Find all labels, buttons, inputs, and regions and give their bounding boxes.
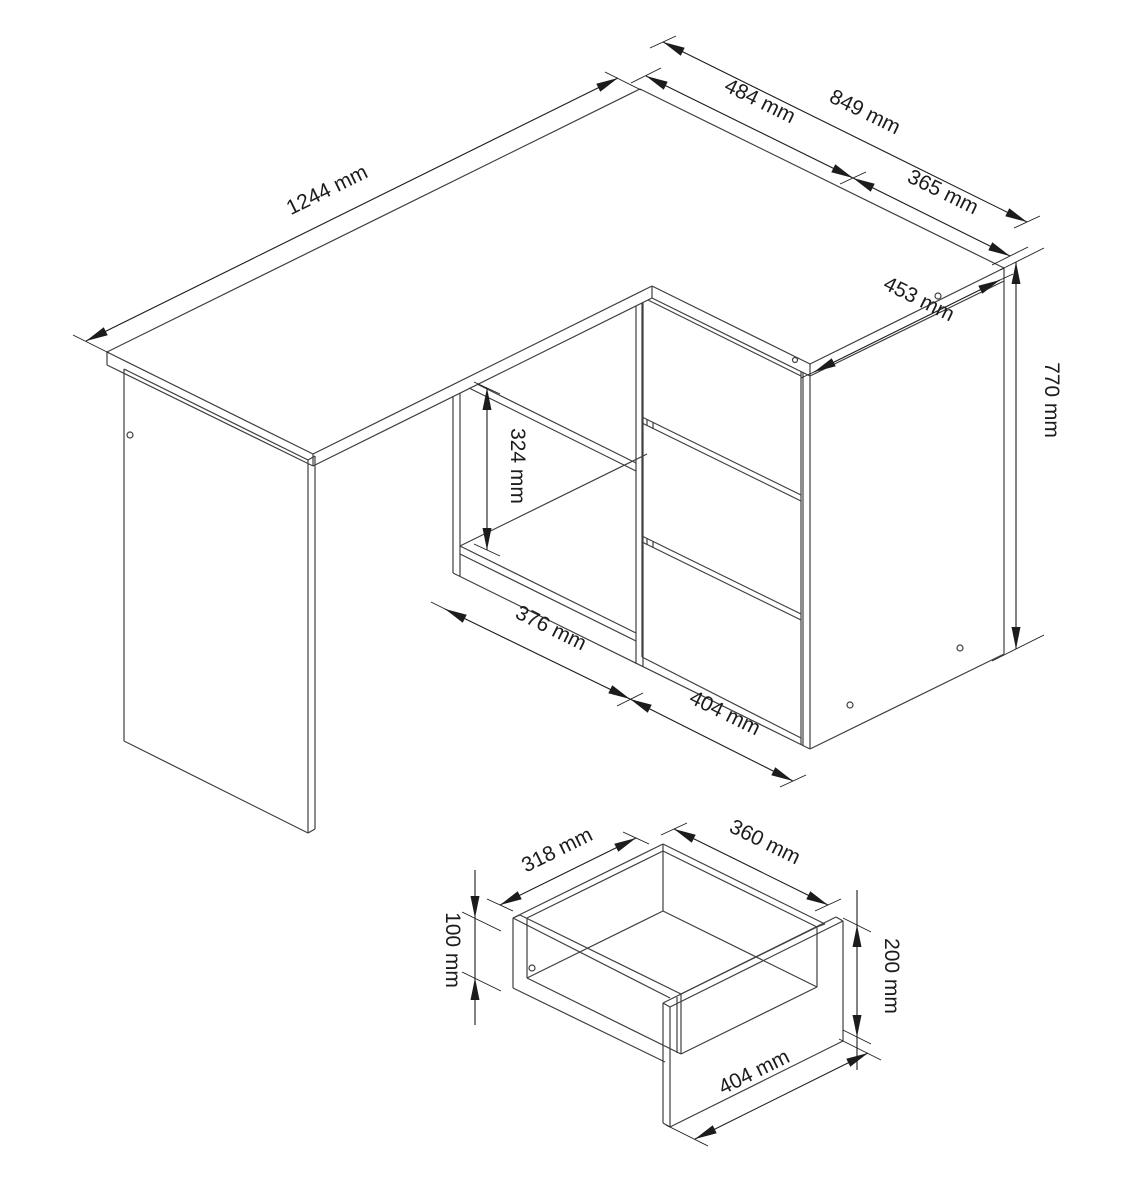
drawing-line — [642, 542, 801, 620]
dimension-arrowhead — [1012, 627, 1021, 649]
drawing-line — [527, 911, 663, 978]
dimension-arrowhead — [471, 896, 480, 918]
screw-hole-mark — [793, 358, 798, 363]
dimension-arrowhead — [674, 829, 696, 843]
dimension-arrowhead — [630, 699, 652, 713]
dim-label-top-right: 365 mm — [904, 165, 982, 219]
dimension-arrowhead — [853, 178, 875, 192]
dimension-arrowhead — [471, 978, 480, 1000]
dim-label-top-segment: 484 mm — [721, 74, 799, 128]
dimension-arrowhead — [695, 1125, 717, 1139]
dimension-arrowhead — [86, 327, 108, 341]
dimension-arrowhead — [853, 1015, 862, 1037]
drawing-line — [652, 286, 810, 364]
dim-label-top-total: 849 mm — [826, 85, 904, 139]
drawing-line — [642, 657, 801, 738]
screw-hole-mark — [957, 645, 963, 651]
dimension-arrowhead — [608, 685, 630, 699]
drawing-line — [513, 988, 665, 1062]
dimension-arrowhead — [646, 76, 668, 90]
dim-label-shelf-height: 324 mm — [506, 428, 529, 504]
dimension-labels: 1244 mm484 mm849 mm365 mm453 mm770 mm324… — [283, 74, 1063, 1099]
dim-label-desk-length: 1244 mm — [283, 160, 372, 219]
drawing-line — [670, 1041, 843, 1127]
drawing-line — [663, 844, 825, 924]
dimension-arrowhead — [663, 42, 685, 56]
dim-label-height: 770 mm — [1040, 362, 1063, 438]
drawing-line — [1000, 248, 1044, 270]
drawing-line — [648, 300, 801, 376]
drawing-line — [469, 388, 636, 471]
drawing-line — [462, 972, 501, 991]
drawing-line — [308, 829, 315, 833]
dim-label-inner-height: 100 mm — [441, 912, 464, 988]
drawing-line — [86, 78, 618, 341]
drawing-line — [462, 912, 501, 931]
drawing-line — [836, 917, 843, 921]
dimension-arrowhead — [978, 280, 1000, 294]
dimension-arrowhead — [596, 78, 618, 92]
drawing-line — [642, 423, 801, 501]
drawing-line — [124, 741, 308, 833]
drawing-line — [124, 369, 308, 460]
dimension-arrowhead — [831, 164, 853, 178]
drawer-detail-lines — [513, 844, 843, 1127]
drawing-line — [527, 978, 681, 1054]
drawing-line — [313, 298, 652, 466]
drawing-line — [640, 89, 1004, 268]
dim-label-pedestal-depth: 453 mm — [880, 272, 958, 326]
drawing-line — [520, 915, 681, 994]
dim-label-drawer-width: 404 mm — [686, 686, 764, 740]
drawing-line — [477, 384, 636, 463]
drawing-line — [642, 536, 801, 614]
drawing-line — [513, 918, 670, 998]
screw-hole-mark — [847, 702, 853, 708]
dimension-arrowhead — [853, 925, 862, 947]
drawing-line — [663, 911, 817, 987]
drawing-line — [652, 298, 810, 376]
dimension-arrowhead — [483, 528, 492, 550]
dimension-arrowhead — [806, 891, 828, 905]
drawing-line — [107, 365, 313, 466]
drawing-line — [313, 286, 652, 454]
drawing-line — [107, 89, 640, 352]
dimension-arrowhead — [1005, 208, 1027, 222]
dimension-arrowhead — [988, 242, 1010, 256]
screw-hole-mark — [529, 965, 535, 971]
dimension-arrowhead — [614, 838, 636, 852]
dimension-arrowhead — [1012, 262, 1021, 284]
screw-hole-mark — [127, 432, 133, 438]
dimension-arrowhead — [445, 609, 467, 623]
drawing-canvas: 1244 mm484 mm849 mm365 mm453 mm770 mm324… — [0, 0, 1131, 1200]
drawing-line — [642, 417, 801, 495]
drawing-line — [810, 654, 1004, 749]
technical-drawing: 1244 mm484 mm849 mm365 mm453 mm770 mm324… — [0, 0, 1131, 1200]
drawing-line — [513, 915, 520, 918]
drawing-line — [663, 1003, 670, 1007]
drawing-line — [681, 987, 817, 1054]
dimension-arrowhead — [500, 891, 522, 905]
main-drawing-lines — [107, 89, 1004, 833]
drawing-line — [308, 456, 315, 460]
drawing-line — [107, 352, 313, 454]
dim-label-inner-depth: 360 mm — [726, 815, 804, 869]
dim-label-front-height: 200 mm — [880, 938, 903, 1014]
dimension-arrowhead — [771, 767, 793, 781]
dim-label-inner-width: 318 mm — [518, 823, 596, 877]
